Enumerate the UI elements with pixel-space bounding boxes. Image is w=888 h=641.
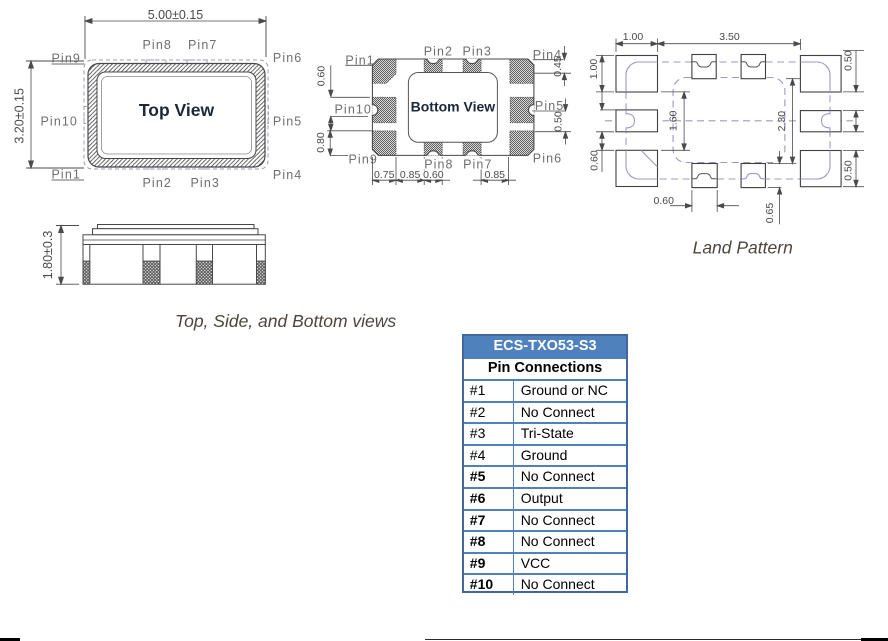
svg-text:0.75: 0.75 [374, 169, 395, 181]
svg-text:Pin6: Pin6 [533, 151, 562, 165]
svg-text:Pin2: Pin2 [424, 45, 453, 59]
svg-text:Pin7: Pin7 [463, 157, 492, 171]
svg-text:0.80: 0.80 [315, 132, 327, 153]
svg-text:3.50: 3.50 [719, 31, 740, 43]
svg-text:Pin1: Pin1 [345, 53, 374, 67]
svg-text:Pin4: Pin4 [273, 168, 302, 182]
svg-text:1.00: 1.00 [588, 59, 600, 80]
svg-text:2.30: 2.30 [776, 111, 788, 132]
svg-text:Pin8: Pin8 [424, 157, 453, 171]
svg-text:Pin9: Pin9 [349, 153, 378, 167]
svg-text:Pin3: Pin3 [191, 176, 220, 190]
svg-text:0.85: 0.85 [400, 169, 421, 181]
svg-text:0.50: 0.50 [552, 111, 564, 132]
svg-text:1.60: 1.60 [668, 110, 680, 131]
svg-text:0.50: 0.50 [843, 160, 855, 181]
svg-text:Land Pattern: Land Pattern [693, 238, 793, 258]
svg-text:0.50: 0.50 [843, 50, 855, 71]
svg-text:1.80±0.3: 1.80±0.3 [41, 231, 55, 280]
svg-text:5.00±0.15: 5.00±0.15 [148, 8, 204, 22]
svg-text:Pin1: Pin1 [52, 168, 81, 182]
svg-text:Top View: Top View [139, 100, 215, 120]
svg-text:Pin10: Pin10 [335, 103, 372, 117]
svg-text:Pin5: Pin5 [273, 114, 302, 128]
svg-text:Pin10: Pin10 [41, 114, 78, 128]
svg-text:1.00: 1.00 [623, 31, 644, 43]
svg-text:Bottom View: Bottom View [411, 99, 496, 115]
svg-text:Pin7: Pin7 [188, 38, 217, 52]
svg-text:0.60: 0.60 [653, 195, 674, 207]
svg-text:3.20±0.15: 3.20±0.15 [13, 88, 27, 144]
svg-text:Top, Side, and Bottom views: Top, Side, and Bottom views [175, 311, 396, 331]
svg-text:Pin5: Pin5 [535, 99, 564, 113]
svg-text:0.60: 0.60 [316, 66, 328, 87]
svg-text:Pin6: Pin6 [273, 51, 302, 65]
svg-text:0.60: 0.60 [589, 150, 601, 171]
svg-text:0.65: 0.65 [764, 203, 776, 224]
svg-text:Pin8: Pin8 [143, 38, 172, 52]
svg-text:Pin2: Pin2 [143, 176, 172, 190]
svg-text:Pin9: Pin9 [52, 52, 81, 66]
svg-text:Pin3: Pin3 [463, 45, 492, 59]
svg-text:Pin4: Pin4 [533, 48, 562, 62]
